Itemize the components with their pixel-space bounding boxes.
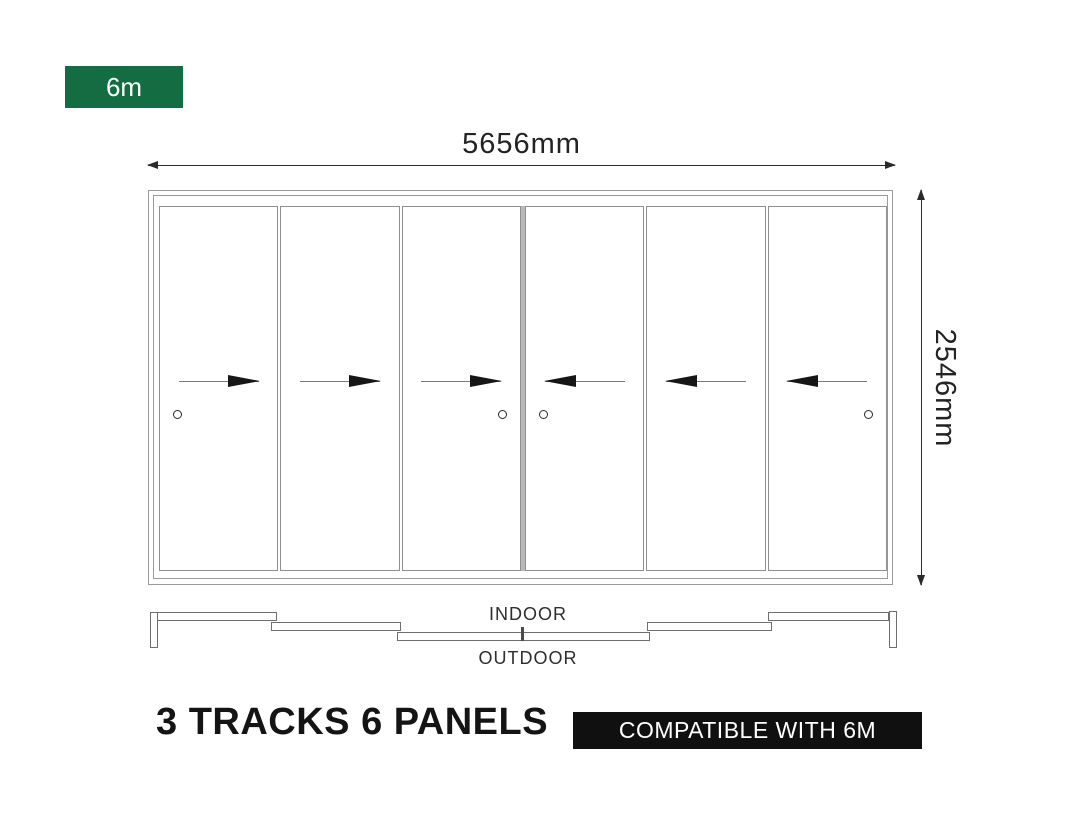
page-title: 3 TRACKS 6 PANELS xyxy=(156,701,548,744)
arrow-head xyxy=(228,375,260,387)
size-badge: 6m xyxy=(65,66,183,108)
slide-direction-right-arrow-icon xyxy=(300,375,380,388)
slide-direction-left-arrow-icon xyxy=(787,375,867,388)
arrow-head xyxy=(349,375,381,387)
arrow-head xyxy=(786,375,818,387)
slide-direction-left-arrow-icon xyxy=(545,375,625,388)
slide-direction-left-arrow-icon xyxy=(666,375,746,388)
door-handle-icon xyxy=(173,410,182,419)
dimension-arrow-left-icon xyxy=(147,161,158,169)
dimension-arrow-down-icon xyxy=(917,575,925,586)
track3-center-meeting-tick xyxy=(521,627,524,641)
compatibility-badge-label: COMPATIBLE WITH 6M xyxy=(619,717,876,744)
height-dimension-line xyxy=(921,190,922,585)
track2-bar-right xyxy=(647,622,772,631)
panel-5 xyxy=(646,206,765,571)
arrow-head xyxy=(470,375,502,387)
door-handle-icon xyxy=(498,410,507,419)
width-dimension-line xyxy=(148,165,895,166)
arrow-head xyxy=(544,375,576,387)
panels-row xyxy=(159,206,887,571)
door-handle-icon xyxy=(539,410,548,419)
track2-bar-left xyxy=(271,622,401,631)
panel-2 xyxy=(280,206,399,571)
compatibility-badge: COMPATIBLE WITH 6M xyxy=(573,712,922,749)
dimension-arrow-right-icon xyxy=(885,161,896,169)
slide-direction-right-arrow-icon xyxy=(179,375,259,388)
panel-3 xyxy=(402,206,521,571)
indoor-label: INDOOR xyxy=(428,604,628,625)
panel-6 xyxy=(768,206,887,571)
track1-bar-left xyxy=(157,612,277,621)
width-dimension-label: 5656mm xyxy=(148,128,895,161)
outdoor-label: OUTDOOR xyxy=(428,648,628,669)
door-handle-icon xyxy=(864,410,873,419)
dimension-arrow-up-icon xyxy=(917,189,925,200)
size-badge-label: 6m xyxy=(106,72,142,103)
panel-4 xyxy=(525,206,644,571)
arrow-head xyxy=(665,375,697,387)
slide-direction-right-arrow-icon xyxy=(421,375,501,388)
door-spec-diagram-page: 6m 5656mm 2546mm INDOOR OUTDOOR 3 TRACKS… xyxy=(0,0,1080,831)
height-dimension-label: 2546mm xyxy=(928,329,961,448)
panel-1 xyxy=(159,206,278,571)
track1-bar-right xyxy=(768,612,889,621)
track-end-cap-right xyxy=(889,611,897,648)
